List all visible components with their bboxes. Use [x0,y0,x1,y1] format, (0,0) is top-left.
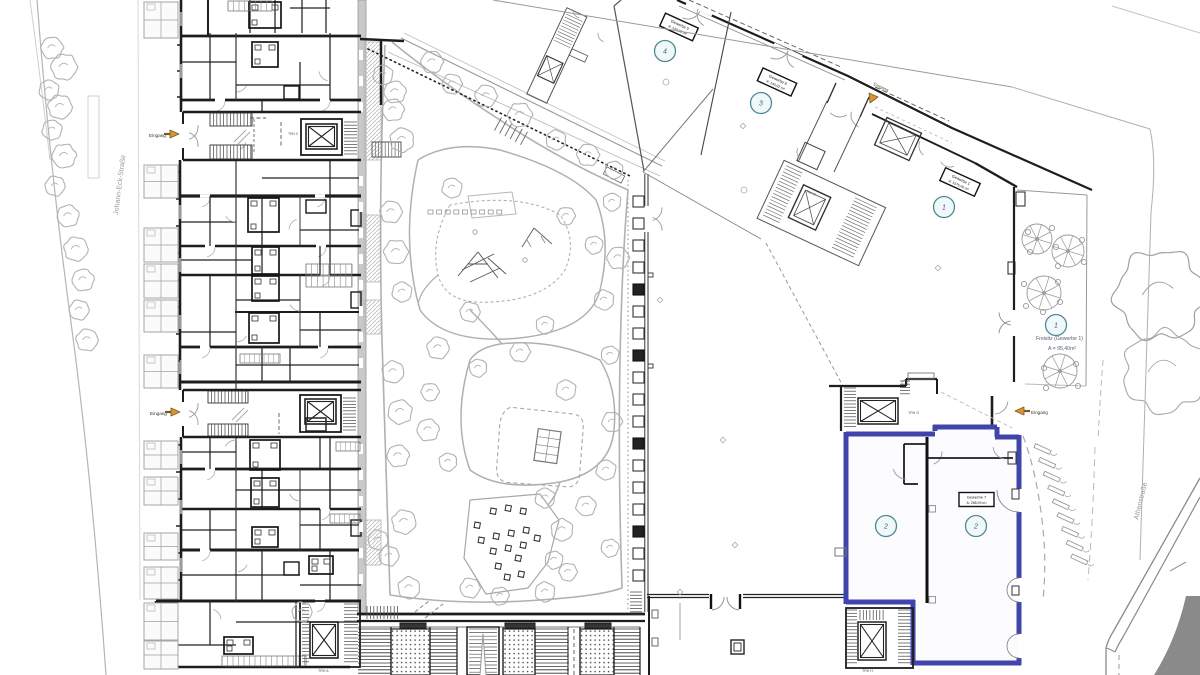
svg-text:2: 2 [973,524,978,531]
svg-text:1: 1 [942,205,946,212]
svg-text:2: 2 [883,524,888,531]
svg-text:3: 3 [759,101,763,108]
svg-text:TRH C: TRH C [288,132,299,136]
svg-text:1: 1 [1054,323,1058,330]
svg-text:Eingang: Eingang [1031,410,1048,415]
svg-text:A = 95,40m²: A = 95,40m² [1048,346,1076,352]
svg-text:TRH H: TRH H [862,669,873,673]
svg-text:A: 268,93 m²: A: 268,93 m² [966,501,987,505]
svg-text:Eingang: Eingang [150,411,167,416]
svg-text:TRH A: TRH A [318,669,329,673]
svg-text:TRH G: TRH G [908,411,919,415]
svg-text:Gewerbe 7: Gewerbe 7 [967,495,987,500]
svg-text:Eingang: Eingang [149,133,166,138]
svg-text:Freisitz (Gewerbe 1): Freisitz (Gewerbe 1) [1036,336,1083,342]
svg-text:4: 4 [663,49,667,56]
